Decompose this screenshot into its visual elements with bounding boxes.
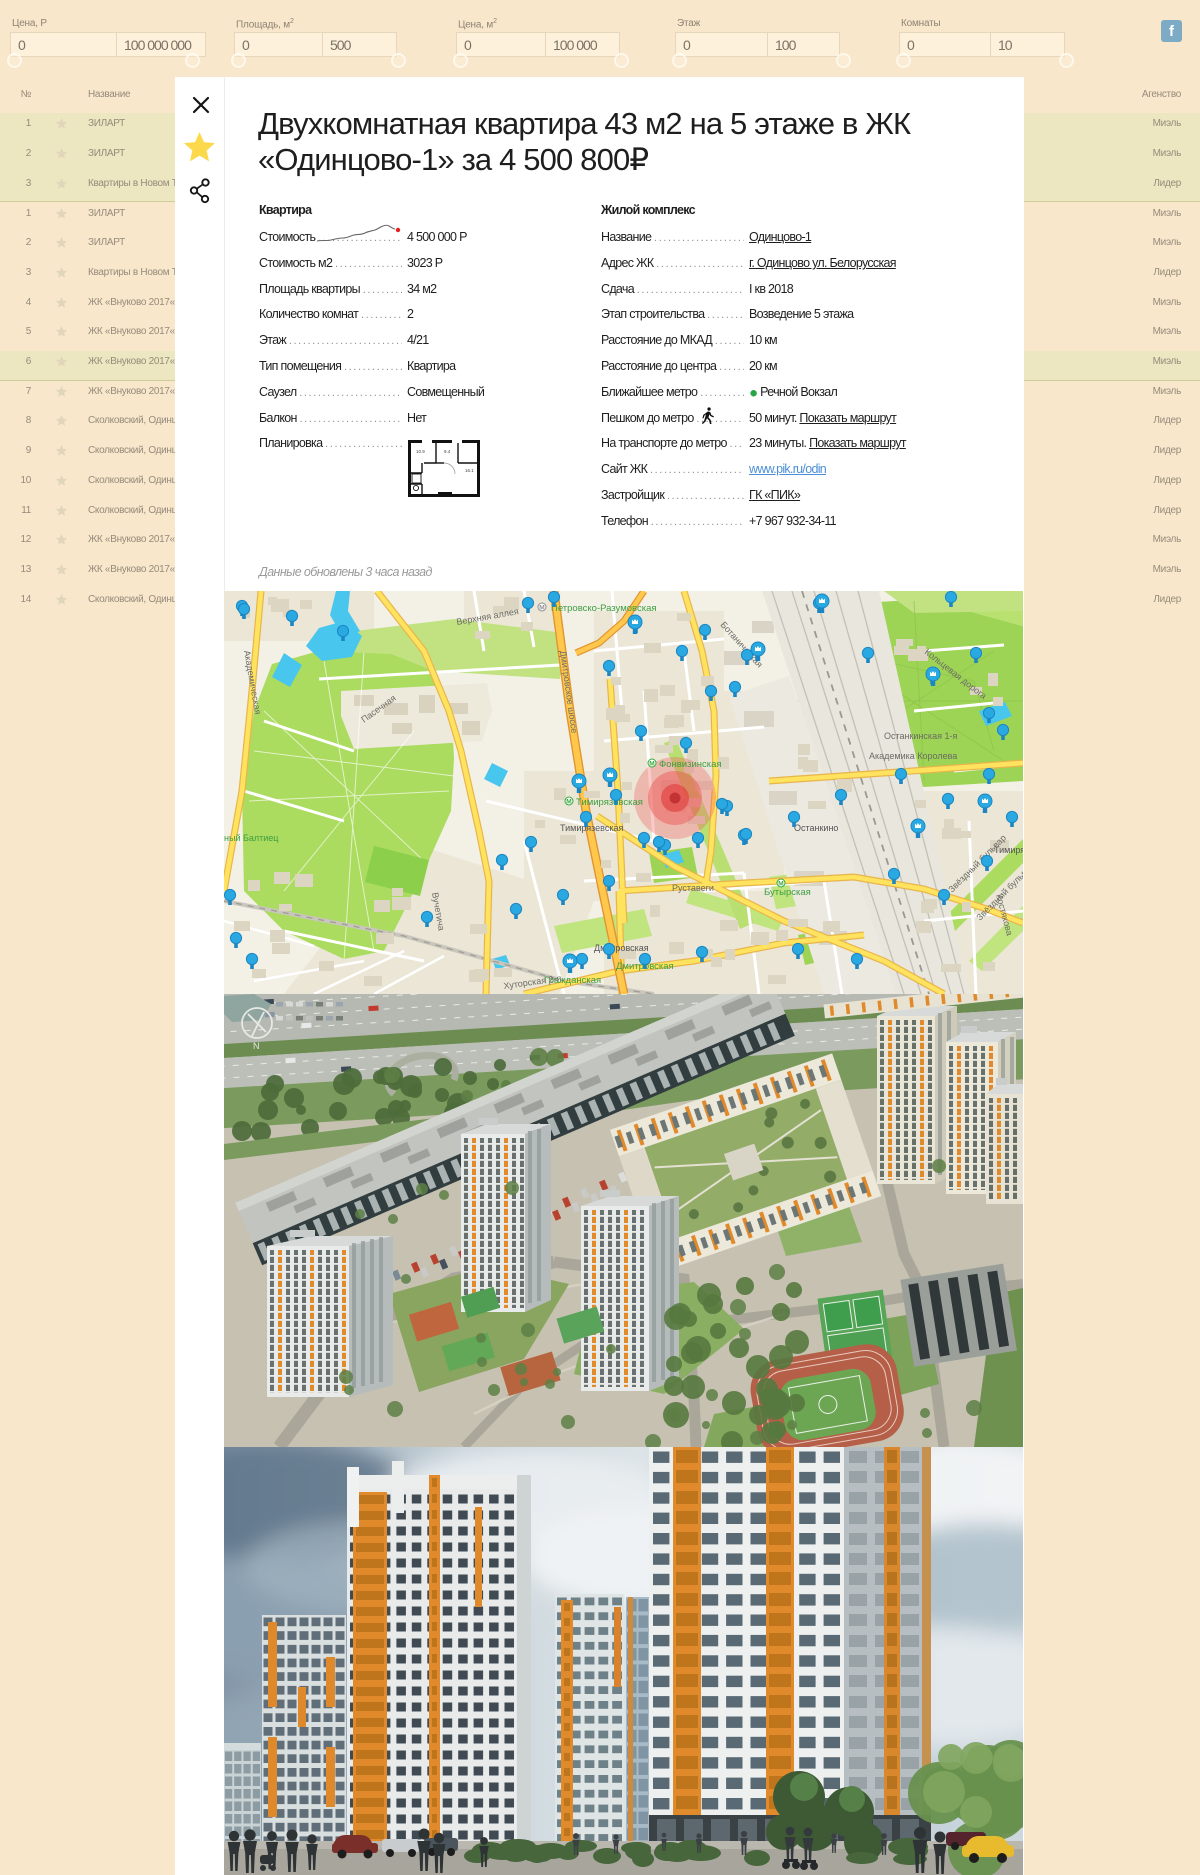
svg-text:M: M xyxy=(566,799,571,806)
svg-text:N: N xyxy=(253,1041,260,1051)
svg-text:16.1: 16.1 xyxy=(465,468,474,473)
svg-text:M: M xyxy=(539,605,544,612)
svg-text:ный Балтиец: ный Балтиец xyxy=(224,833,278,843)
svg-text:Тимирязевская: Тимирязевская xyxy=(576,797,643,808)
svg-text:Тимирязевская: Тимирязевская xyxy=(560,823,623,833)
svg-text:Фонвизинская: Фонвизинская xyxy=(659,759,722,770)
svg-text:Руставеги: Руставеги xyxy=(672,883,714,893)
svg-text:Останкинская 1-я: Останкинская 1-я xyxy=(884,731,957,741)
svg-text:Бутырская: Бутырская xyxy=(764,887,811,898)
svg-text:Дмитровская: Дмитровская xyxy=(594,943,649,953)
svg-text:Останкино: Останкино xyxy=(794,823,838,833)
svg-text:10.9: 10.9 xyxy=(416,449,425,454)
svg-text:M: M xyxy=(649,761,654,768)
svg-text:9.4: 9.4 xyxy=(444,449,451,454)
svg-text:Академика Королева: Академика Королева xyxy=(869,751,957,761)
svg-text:Петровско-Разумовская: Петровско-Разумовская xyxy=(551,603,657,614)
